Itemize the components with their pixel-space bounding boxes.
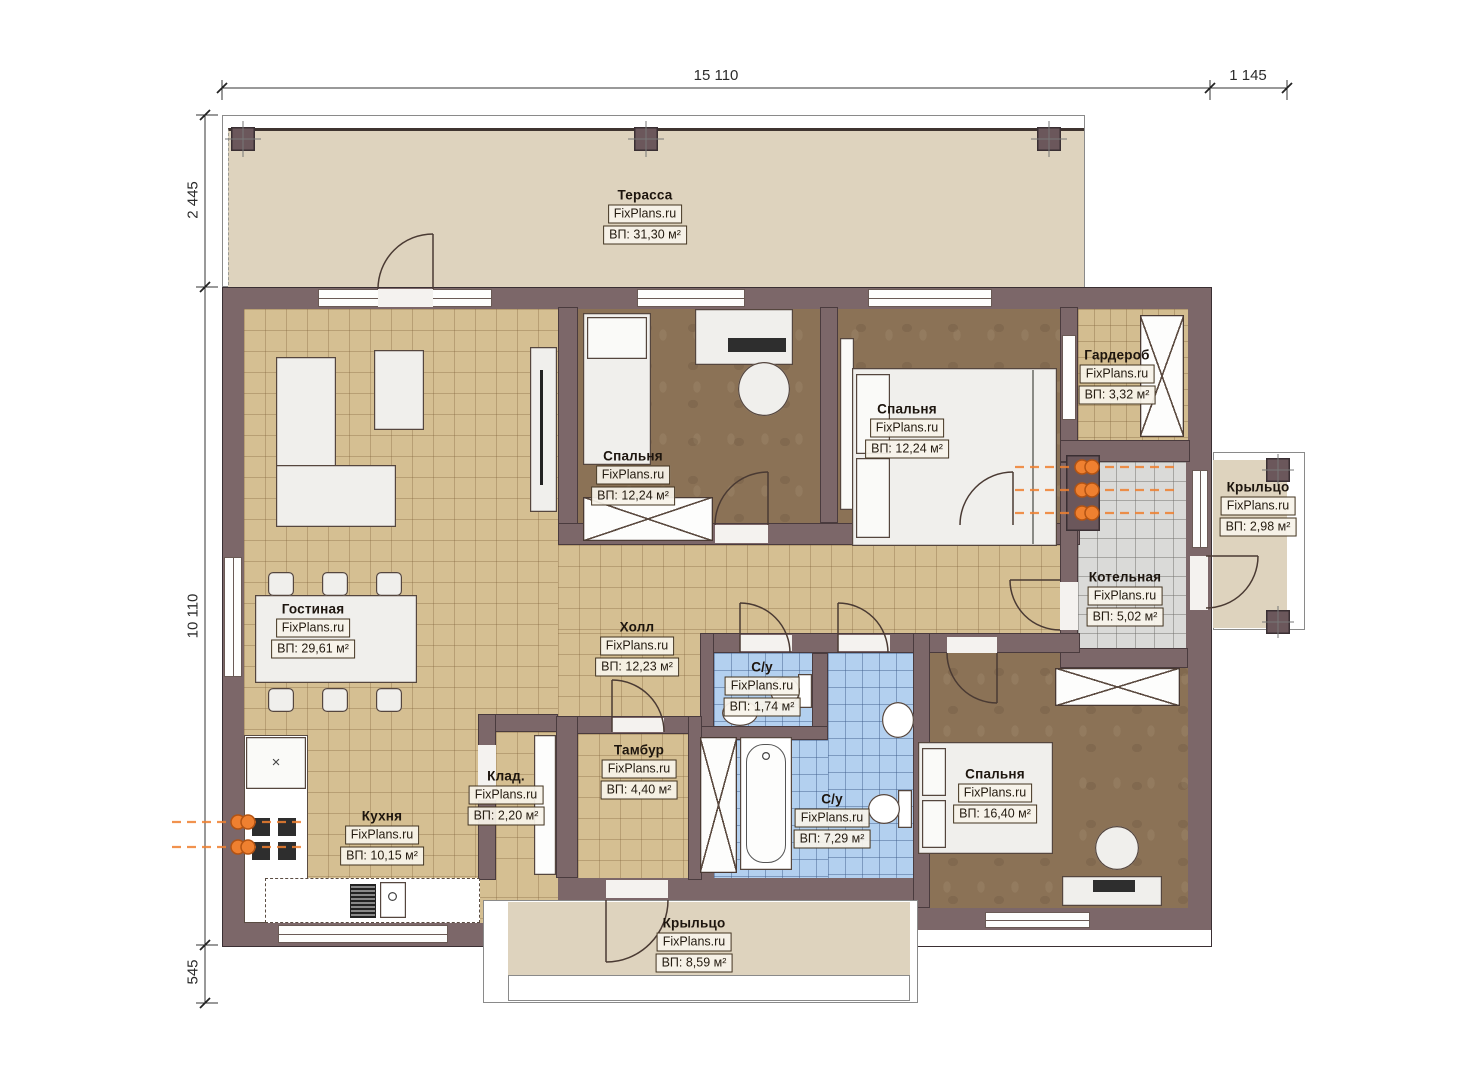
kitchen-stove: [350, 884, 376, 918]
coffee-table: [374, 350, 424, 430]
door-opening: [740, 635, 792, 651]
floor-plan: ×: [0, 0, 1473, 1080]
chair: [322, 688, 348, 712]
wall: [820, 307, 838, 523]
office-chair: [1095, 826, 1139, 870]
pillow: [856, 458, 890, 538]
toilet-bowl: [770, 677, 800, 705]
computer-monitor: [1093, 880, 1135, 892]
wall: [700, 633, 714, 733]
bathroom-big-floor-right: [828, 653, 913, 878]
sink: [882, 702, 914, 738]
door-opening: [1060, 582, 1078, 630]
door-opening: [838, 635, 890, 651]
sofa-chaise: [276, 465, 396, 527]
pillow: [922, 800, 946, 848]
dimension-label-left-top: 2 445: [185, 181, 202, 219]
pillow: [587, 317, 647, 359]
porch-bottom-step: [508, 975, 910, 1001]
chair: [322, 572, 348, 596]
wall: [556, 716, 578, 878]
dining-table: [255, 595, 417, 683]
chair: [268, 688, 294, 712]
pillow: [922, 748, 946, 796]
door-opening: [1190, 556, 1208, 610]
footprint-cut: [884, 930, 1211, 946]
window: [637, 289, 745, 307]
pocket-door-opening: [1062, 335, 1076, 420]
porch-column: [1266, 458, 1290, 482]
porch-bottom-floor: [508, 902, 910, 975]
wardrobe: [1055, 668, 1180, 706]
hall-corridor-floor: [558, 545, 1060, 633]
terrace-floor: [228, 128, 1084, 290]
door-opening: [478, 745, 496, 800]
wardrobe: [1140, 315, 1184, 437]
blanket-line: [1032, 370, 1034, 544]
door-opening: [606, 880, 668, 898]
chair: [376, 572, 402, 596]
tambour-floor: [578, 734, 688, 878]
cabinet-x-icon: ×: [268, 755, 284, 771]
porch-right-floor: [1213, 460, 1287, 628]
window: [985, 912, 1090, 928]
wardrobe: [583, 497, 713, 541]
terrace-column: [231, 127, 255, 151]
dimension-label-left-main: 10 110: [185, 594, 202, 639]
computer-monitor: [728, 338, 786, 352]
terrace-column: [1037, 127, 1061, 151]
dimension-label-left-bottom: 545: [185, 959, 202, 984]
stove-burners: [252, 818, 270, 836]
kitchen-faucet: [388, 892, 397, 901]
sink: [722, 700, 758, 726]
tv: [540, 370, 543, 485]
door-opening: [947, 637, 997, 653]
window: [1192, 470, 1208, 548]
pillow: [856, 374, 890, 454]
porch-column: [1266, 610, 1290, 634]
window: [278, 925, 448, 943]
door-opening: [715, 525, 768, 543]
wall: [558, 307, 578, 545]
toilet-bowl: [868, 794, 900, 824]
door-opening: [378, 289, 433, 307]
office-chair: [738, 362, 790, 416]
door-opening: [612, 718, 664, 732]
bathroom-closet: [700, 737, 737, 873]
bathtub-basin: [746, 744, 786, 863]
chair: [268, 572, 294, 596]
toilet-tank: [898, 790, 912, 828]
chair: [376, 688, 402, 712]
tv-stand: [530, 347, 557, 512]
window: [868, 289, 992, 307]
wall: [812, 653, 828, 730]
storage-sliding-door: [534, 735, 556, 875]
terrace-column: [634, 127, 658, 151]
toilet-tank: [798, 674, 812, 708]
dimension-label-top-right: 1 145: [1229, 67, 1267, 84]
dimension-label-top-main: 15 110: [694, 67, 739, 84]
desk: [695, 309, 793, 365]
window: [224, 557, 242, 677]
bathtub-drain: [762, 752, 770, 760]
boiler-unit: [1066, 455, 1100, 531]
hall-south-floor: [558, 633, 700, 716]
